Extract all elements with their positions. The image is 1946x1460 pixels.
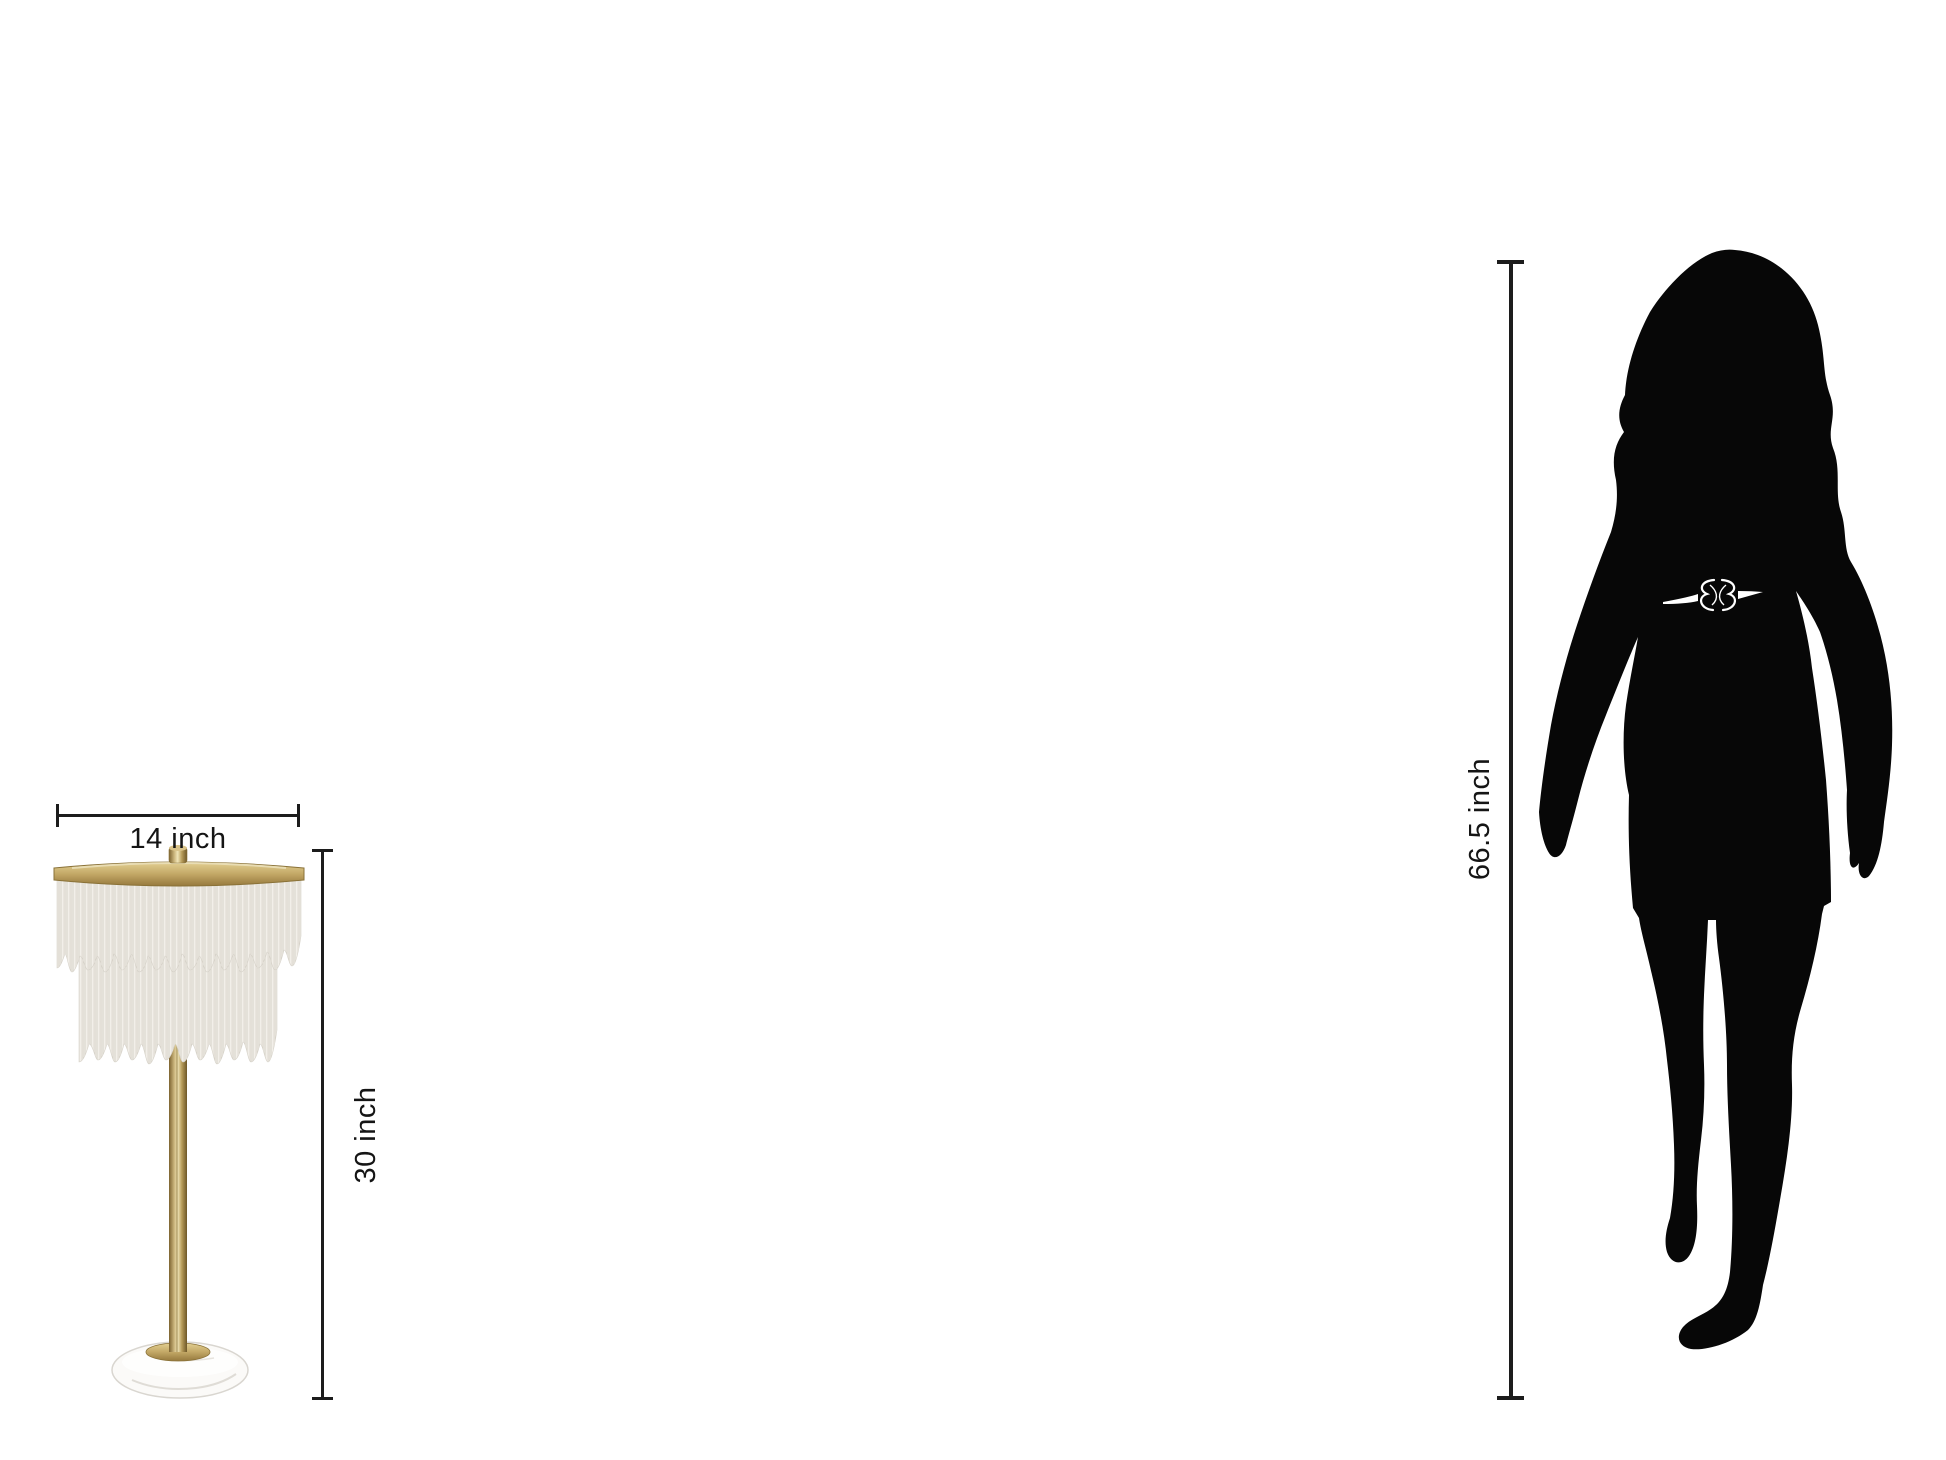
lamp-height-dimension-line [312, 849, 333, 1400]
size-comparison-image: 14 inch 30 inch 66.5 inch [0, 0, 1946, 1460]
tick-top [312, 849, 333, 852]
tick-bottom [1497, 1396, 1524, 1400]
tick-right [297, 804, 300, 827]
lamp-illustration [54, 845, 304, 1398]
person-height-dimension-line [1497, 260, 1524, 1400]
person-height-label: 66.5 inch [1463, 739, 1497, 899]
illustration-layer [0, 0, 1946, 1460]
lamp-width-label: 14 inch [78, 822, 278, 856]
woman-body [1539, 250, 1892, 1350]
lamp-height-label: 30 inch [349, 1065, 383, 1205]
woman-silhouette [1539, 250, 1892, 1350]
tick-top [1497, 260, 1524, 264]
lamp-pole [169, 1030, 187, 1352]
tick-left [56, 804, 59, 827]
tick-bottom [312, 1397, 333, 1400]
